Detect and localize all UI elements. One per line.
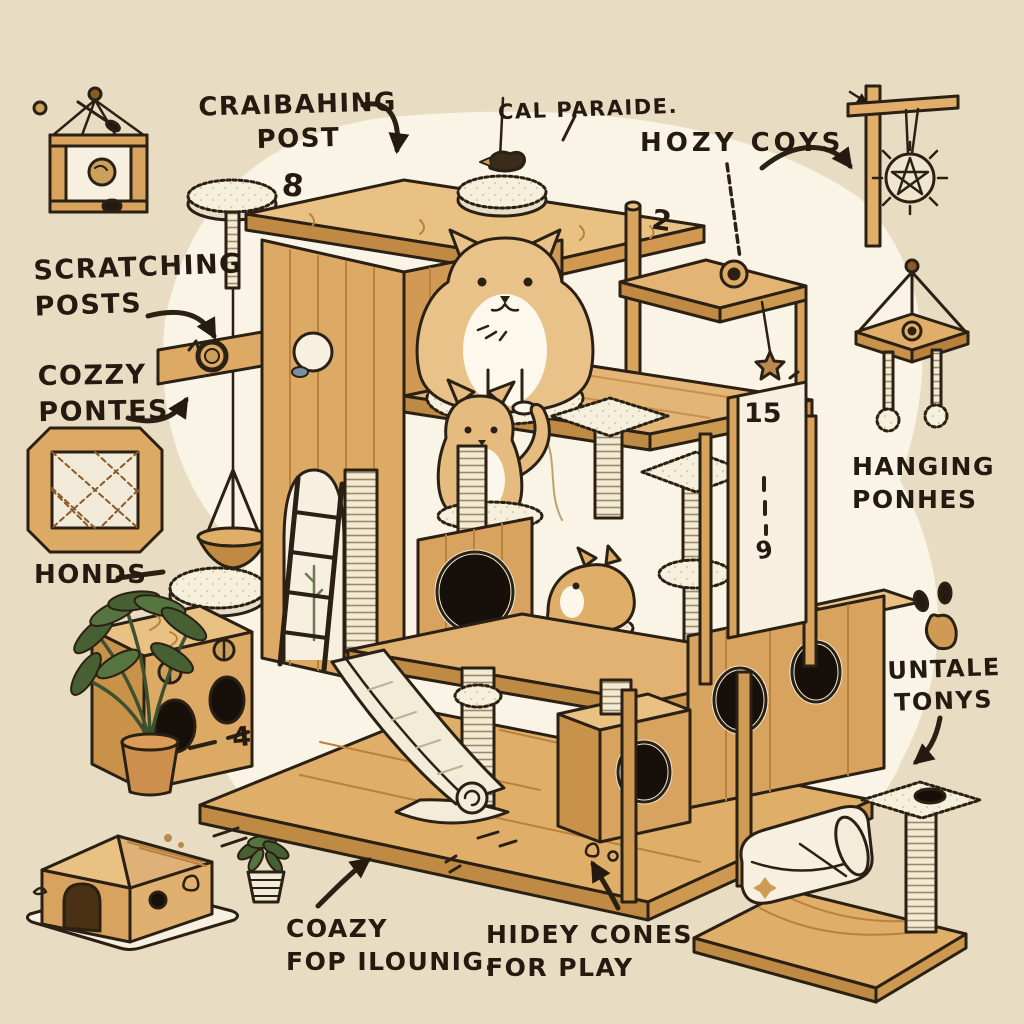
small-plant: [235, 835, 291, 902]
lattice-box: [28, 428, 162, 552]
label-honds: HONDS: [34, 558, 147, 592]
label-untale-tonys: UNTALE TONYS: [887, 652, 999, 719]
hanging-ball-post: [848, 86, 958, 246]
label-hozy-coys: HOZY COYS: [640, 126, 844, 160]
label-cozzy-pontes: COZZY PONTES: [37, 357, 169, 431]
label-scratching-posts: SCRATCHING POSTS: [33, 246, 245, 325]
hanging-box-toy: [34, 88, 147, 212]
tower-window: [294, 333, 332, 371]
number-8: 8: [280, 167, 305, 205]
label-hanging-ponhes: HANGING PONHES: [852, 450, 995, 516]
arrow-untale: [916, 718, 940, 762]
cat-house: [27, 836, 237, 950]
cat-tree-illustration: CRAIBAHING POST CAL PARAIDE. HOZY COYS S…: [0, 0, 1024, 1024]
arrow-coazy: [318, 860, 368, 906]
label-craibahing-post: CRAIBAHING POST: [195, 85, 401, 159]
number-15: 15: [744, 398, 782, 429]
label-coazy-fop-ilounig: COAZY FOP ILOUNIG.: [286, 912, 496, 978]
label-hidey-cones: HIDEY CONES FOR PLAY: [486, 918, 693, 984]
number-4: 4: [230, 721, 252, 754]
